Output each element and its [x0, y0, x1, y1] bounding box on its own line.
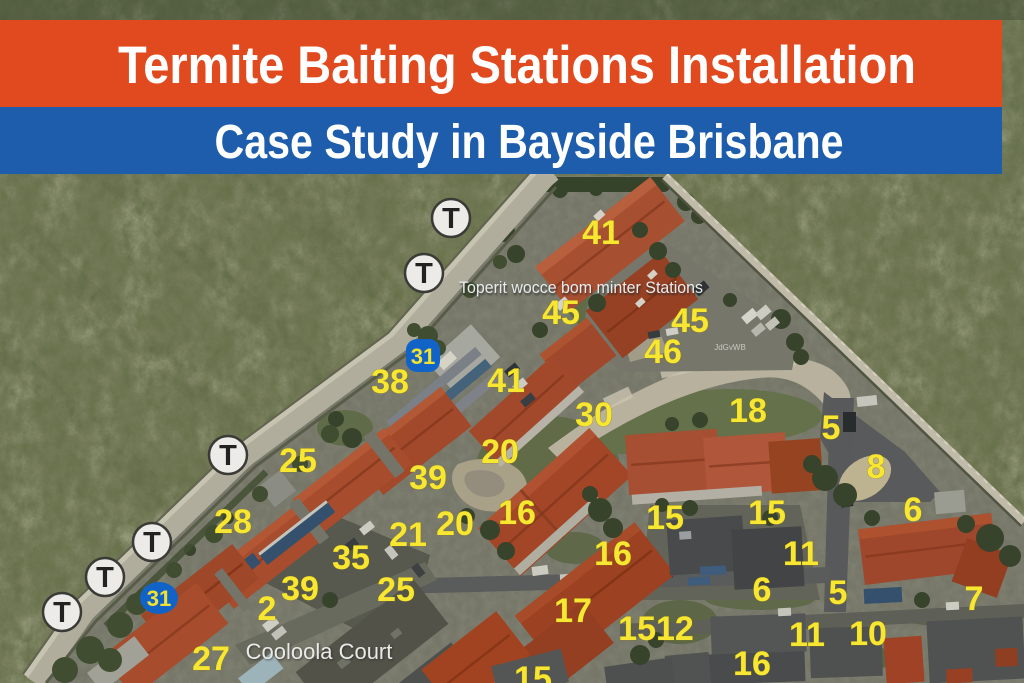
- svg-text:27: 27: [192, 640, 230, 678]
- svg-text:17: 17: [554, 592, 592, 630]
- svg-text:5: 5: [822, 409, 841, 447]
- svg-text:25: 25: [377, 571, 415, 609]
- svg-text:20: 20: [436, 505, 474, 543]
- svg-text:30: 30: [575, 396, 613, 434]
- svg-text:6: 6: [753, 571, 772, 609]
- svg-text:T: T: [96, 562, 114, 594]
- svg-text:16: 16: [594, 535, 632, 573]
- svg-text:T: T: [219, 440, 237, 472]
- svg-text:Toperit wocce bom minter Stati: Toperit wocce bom minter Stations: [459, 278, 703, 297]
- svg-text:41: 41: [487, 362, 525, 400]
- svg-text:21: 21: [389, 516, 427, 554]
- svg-text:38: 38: [371, 363, 409, 401]
- svg-text:39: 39: [281, 570, 319, 608]
- svg-text:11: 11: [783, 535, 819, 573]
- svg-text:15: 15: [748, 494, 786, 532]
- svg-text:18: 18: [729, 392, 767, 430]
- svg-text:20: 20: [481, 433, 519, 471]
- svg-text:28: 28: [214, 503, 252, 541]
- svg-text:T: T: [143, 527, 161, 559]
- svg-text:2: 2: [258, 590, 277, 628]
- svg-text:10: 10: [849, 615, 887, 653]
- svg-text:Termite Baiting Stations Insta: Termite Baiting Stations Installation: [118, 36, 916, 95]
- svg-text:16: 16: [733, 645, 771, 683]
- svg-text:31: 31: [147, 586, 171, 611]
- svg-text:15: 15: [514, 660, 552, 683]
- svg-text:Cooloola Court: Cooloola Court: [246, 639, 393, 664]
- svg-text:45: 45: [542, 294, 580, 332]
- svg-text:25: 25: [279, 442, 317, 480]
- svg-text:Case Study in Bayside Brisbane: Case Study in Bayside Brisbane: [215, 116, 844, 169]
- svg-text:41: 41: [582, 214, 620, 252]
- svg-text:39: 39: [409, 459, 447, 497]
- svg-text:T: T: [415, 258, 433, 290]
- svg-text:8: 8: [867, 448, 886, 486]
- svg-text:JdGvWB: JdGvWB: [714, 343, 746, 352]
- svg-text:T: T: [442, 203, 460, 235]
- svg-text:T: T: [53, 597, 71, 629]
- svg-text:15: 15: [646, 499, 684, 537]
- svg-text:1512: 1512: [618, 610, 694, 648]
- svg-text:31: 31: [411, 344, 435, 369]
- svg-text:16: 16: [498, 494, 536, 532]
- svg-text:11: 11: [789, 616, 825, 654]
- svg-text:46: 46: [644, 333, 682, 371]
- svg-text:5: 5: [829, 574, 848, 612]
- svg-text:6: 6: [904, 491, 923, 529]
- svg-text:7: 7: [965, 580, 984, 618]
- svg-text:35: 35: [332, 539, 370, 577]
